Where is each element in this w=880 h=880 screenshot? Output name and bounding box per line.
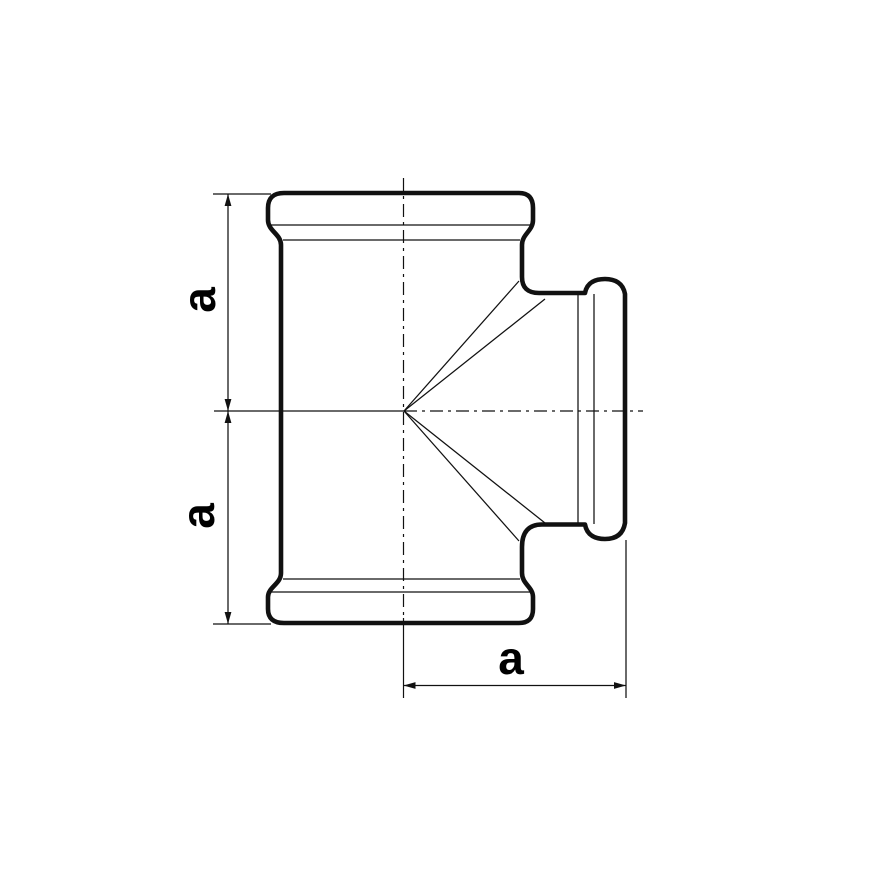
arrowhead-down-icon <box>225 399 232 411</box>
cone-line-lower-1 <box>404 411 545 523</box>
detail-lines <box>270 225 594 592</box>
arrowhead-up-icon <box>225 194 232 206</box>
dimension-label-left-top: a <box>173 287 225 313</box>
ink-group: a a a <box>172 178 643 698</box>
bottom-dimension: a <box>404 540 627 698</box>
tee-body-outline <box>268 193 625 623</box>
dimension-label-left-bottom: a <box>172 503 224 529</box>
arrowhead-down-icon <box>225 612 232 624</box>
arrowhead-up-icon <box>225 411 232 423</box>
drawing-canvas: a a a <box>0 0 880 880</box>
cone-line-upper-2 <box>404 299 545 411</box>
cone-line-lower-2 <box>404 411 519 541</box>
cone-line-upper-1 <box>404 281 519 411</box>
arrowhead-left-icon <box>404 682 416 689</box>
pipe-tee-technical-drawing: a a a <box>0 0 880 880</box>
dimension-label-bottom: a <box>498 632 524 684</box>
arrowhead-right-icon <box>614 682 626 689</box>
left-dimension: a a <box>172 194 271 624</box>
